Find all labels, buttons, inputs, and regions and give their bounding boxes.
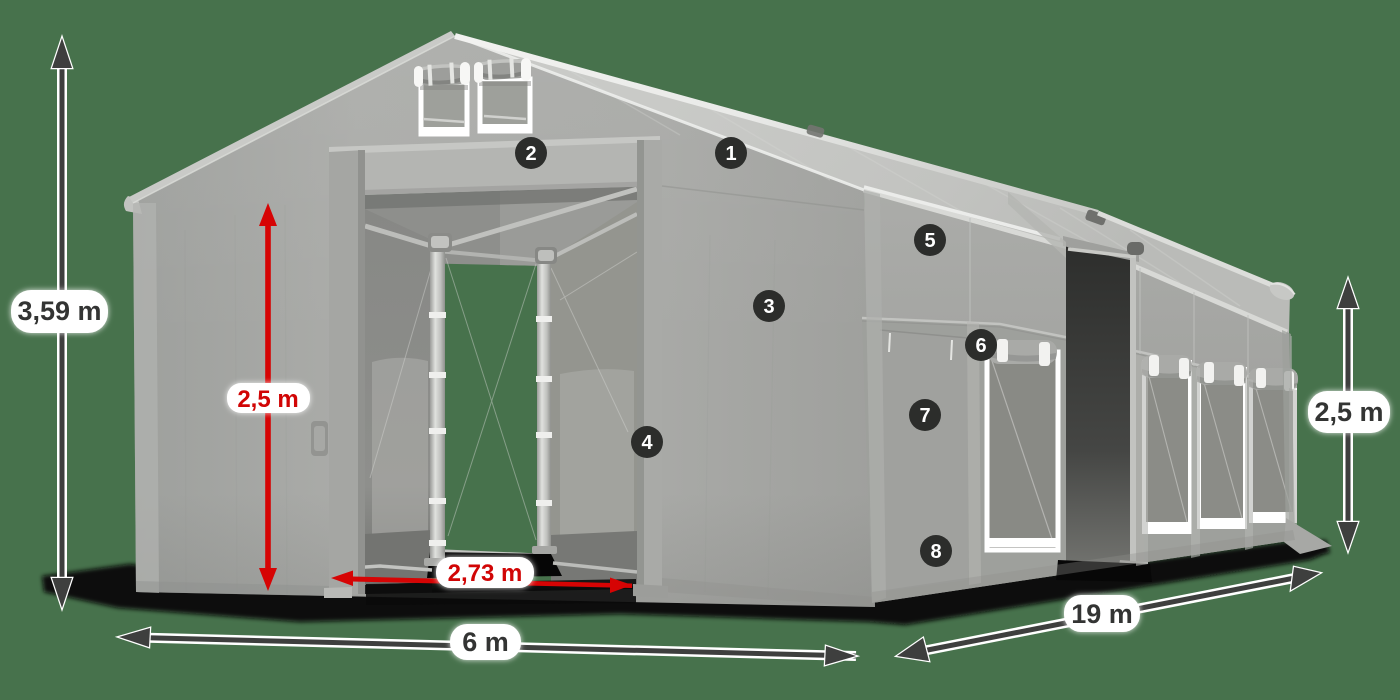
svg-text:5: 5 xyxy=(924,230,935,252)
svg-text:2: 2 xyxy=(525,143,536,165)
svg-text:1: 1 xyxy=(725,143,736,165)
svg-text:19 m: 19 m xyxy=(1071,599,1133,629)
svg-text:6: 6 xyxy=(975,335,986,357)
svg-text:6 m: 6 m xyxy=(462,627,509,657)
svg-text:2,73 m: 2,73 m xyxy=(448,560,523,587)
svg-text:3,59 m: 3,59 m xyxy=(17,296,101,326)
svg-text:2,5 m: 2,5 m xyxy=(237,386,298,413)
svg-text:8: 8 xyxy=(930,541,941,563)
svg-text:2,5 m: 2,5 m xyxy=(1314,397,1383,427)
svg-text:4: 4 xyxy=(641,432,653,454)
svg-text:7: 7 xyxy=(919,405,930,427)
svg-text:3: 3 xyxy=(763,296,774,318)
